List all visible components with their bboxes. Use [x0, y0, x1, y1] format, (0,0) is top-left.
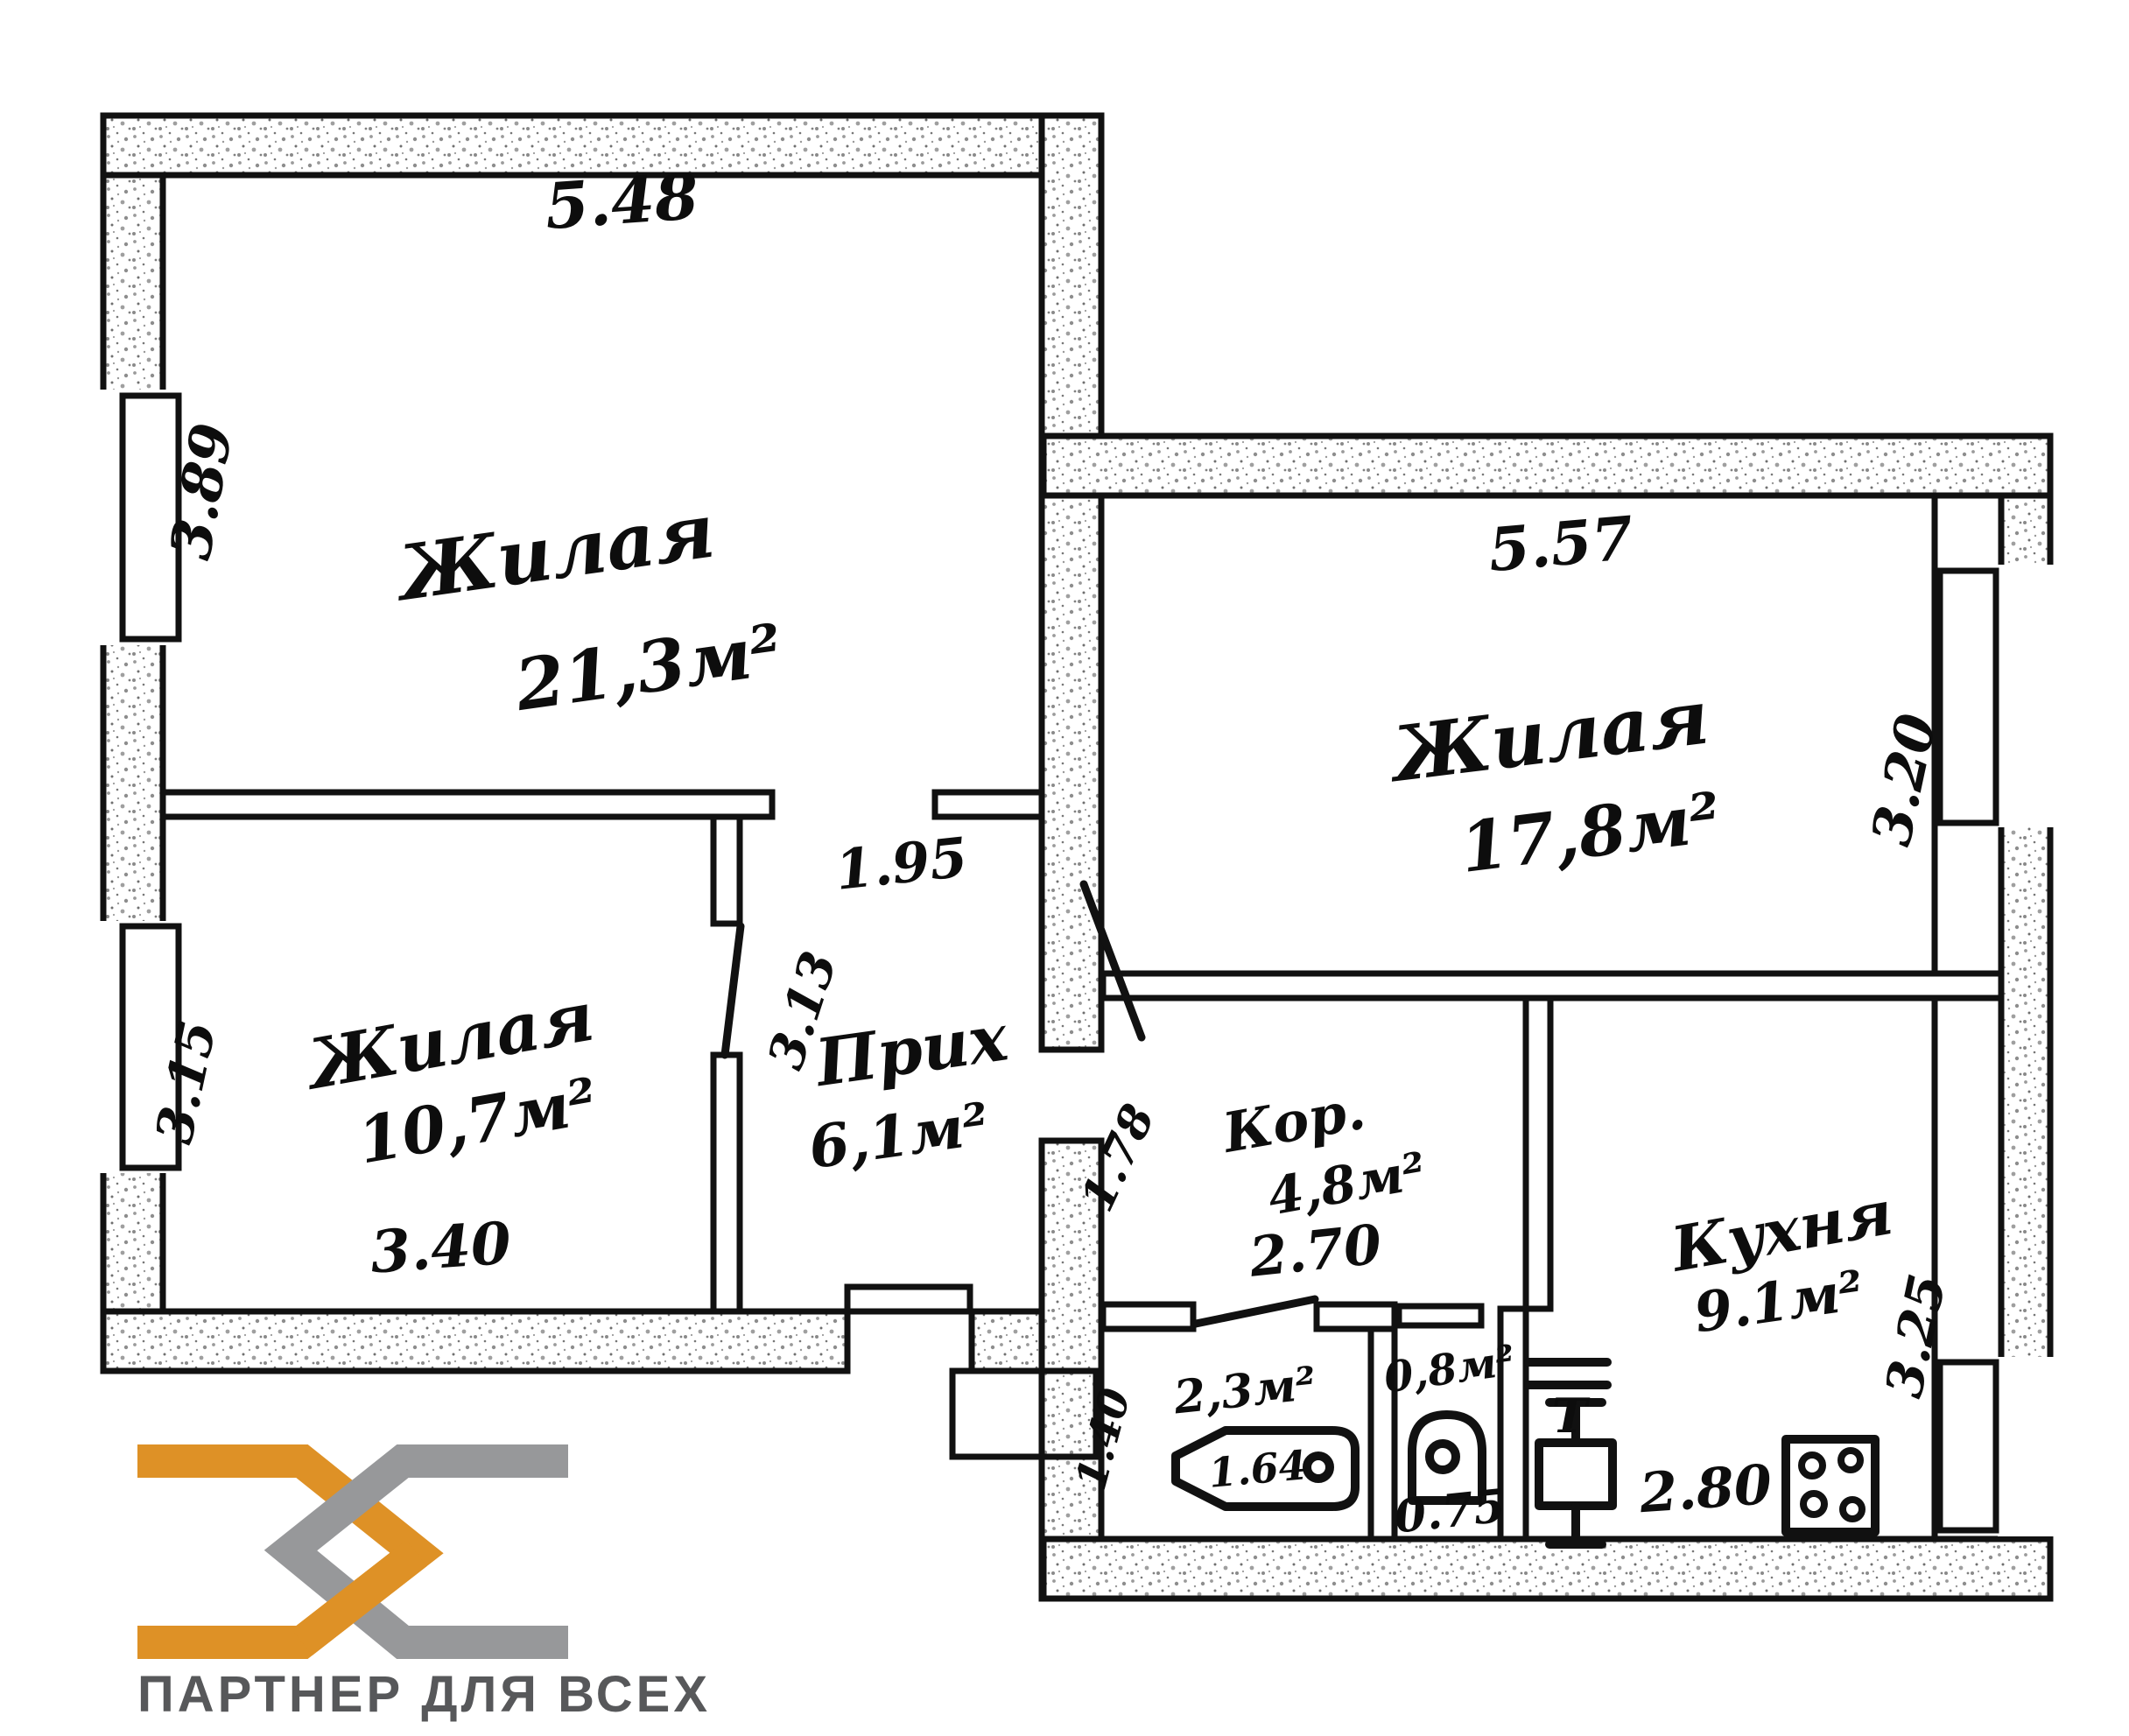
bathroom-door-leaf — [1196, 1299, 1315, 1324]
dim-kitchen-width: 2.80 — [1637, 1452, 1774, 1525]
toilet-cistern — [1430, 1444, 1456, 1470]
dim-living2-width: 3.40 — [368, 1209, 513, 1287]
dim-living3-width: 5.57 — [1486, 503, 1636, 586]
room-bathroom-area: 2,3м² — [1170, 1357, 1318, 1425]
bathtub-length: 1.64 — [1206, 1441, 1308, 1497]
wall-living1-south-left — [163, 792, 772, 817]
wall-hall-west-upper — [713, 817, 740, 924]
wall-bathroom-north-left — [1103, 1304, 1193, 1329]
dim-toilet-width: 0.75 — [1392, 1479, 1507, 1544]
window-kitchen-gap — [1998, 1357, 2054, 1536]
hall-exit-threshold — [847, 1287, 970, 1311]
dim-corridor-width: 2.70 — [1246, 1212, 1385, 1289]
room-living1-name: Жилая — [388, 487, 720, 619]
room-living1-area: 21,3м² — [509, 608, 787, 727]
wall-living3-south — [1103, 973, 2001, 998]
vent-label: Т — [1552, 1388, 1591, 1444]
wall-bottom-left-building-stub — [972, 1311, 1043, 1371]
wall-hall-west-lower — [713, 1055, 740, 1311]
wall-living1-south-right — [935, 792, 1042, 817]
brand-slogan: ПАРТНЕР ДЛЯ ВСЕХ — [137, 1666, 711, 1723]
window-living3-gap — [1998, 565, 2054, 827]
kitchen-sink — [1539, 1443, 1613, 1506]
room-living3-area: 17,8м² — [1456, 777, 1725, 889]
room-hall-area: 6,1м² — [805, 1089, 993, 1182]
room-living3-name: Жилая — [1382, 673, 1713, 800]
wall-bottom-right-building — [1043, 1539, 2050, 1599]
room-corridor-name: Кор. — [1217, 1078, 1370, 1165]
bathtub-drain — [1307, 1456, 1330, 1479]
floor-plan-svg: 5.48 Жилая 21,3м² 3.89 1.95 3.13 Прих 6,… — [0, 0, 2129, 1736]
dim-hall-width: 1.95 — [833, 825, 971, 902]
window-living3-frame — [1940, 571, 1996, 823]
toilet-door-leaf — [1399, 1306, 1481, 1325]
wall-bathroom-north-right — [1317, 1304, 1395, 1329]
window-kitchen-frame — [1940, 1362, 1996, 1530]
floor-plan-page: 5.48 Жилая 21,3м² 3.89 1.95 3.13 Прих 6,… — [0, 0, 2129, 1736]
wall-top-right-building — [1043, 436, 2050, 495]
room-hall-name: Прих — [810, 1000, 1013, 1101]
brand-logo: ПАРТНЕР ДЛЯ ВСЕХ — [137, 1461, 711, 1723]
wall-bottom-left-building — [103, 1311, 847, 1371]
dim-living1-width: 5.48 — [543, 158, 701, 243]
hall-room-door-leaf — [725, 926, 741, 1055]
wall-corridor-kitchen — [1526, 998, 1550, 1309]
